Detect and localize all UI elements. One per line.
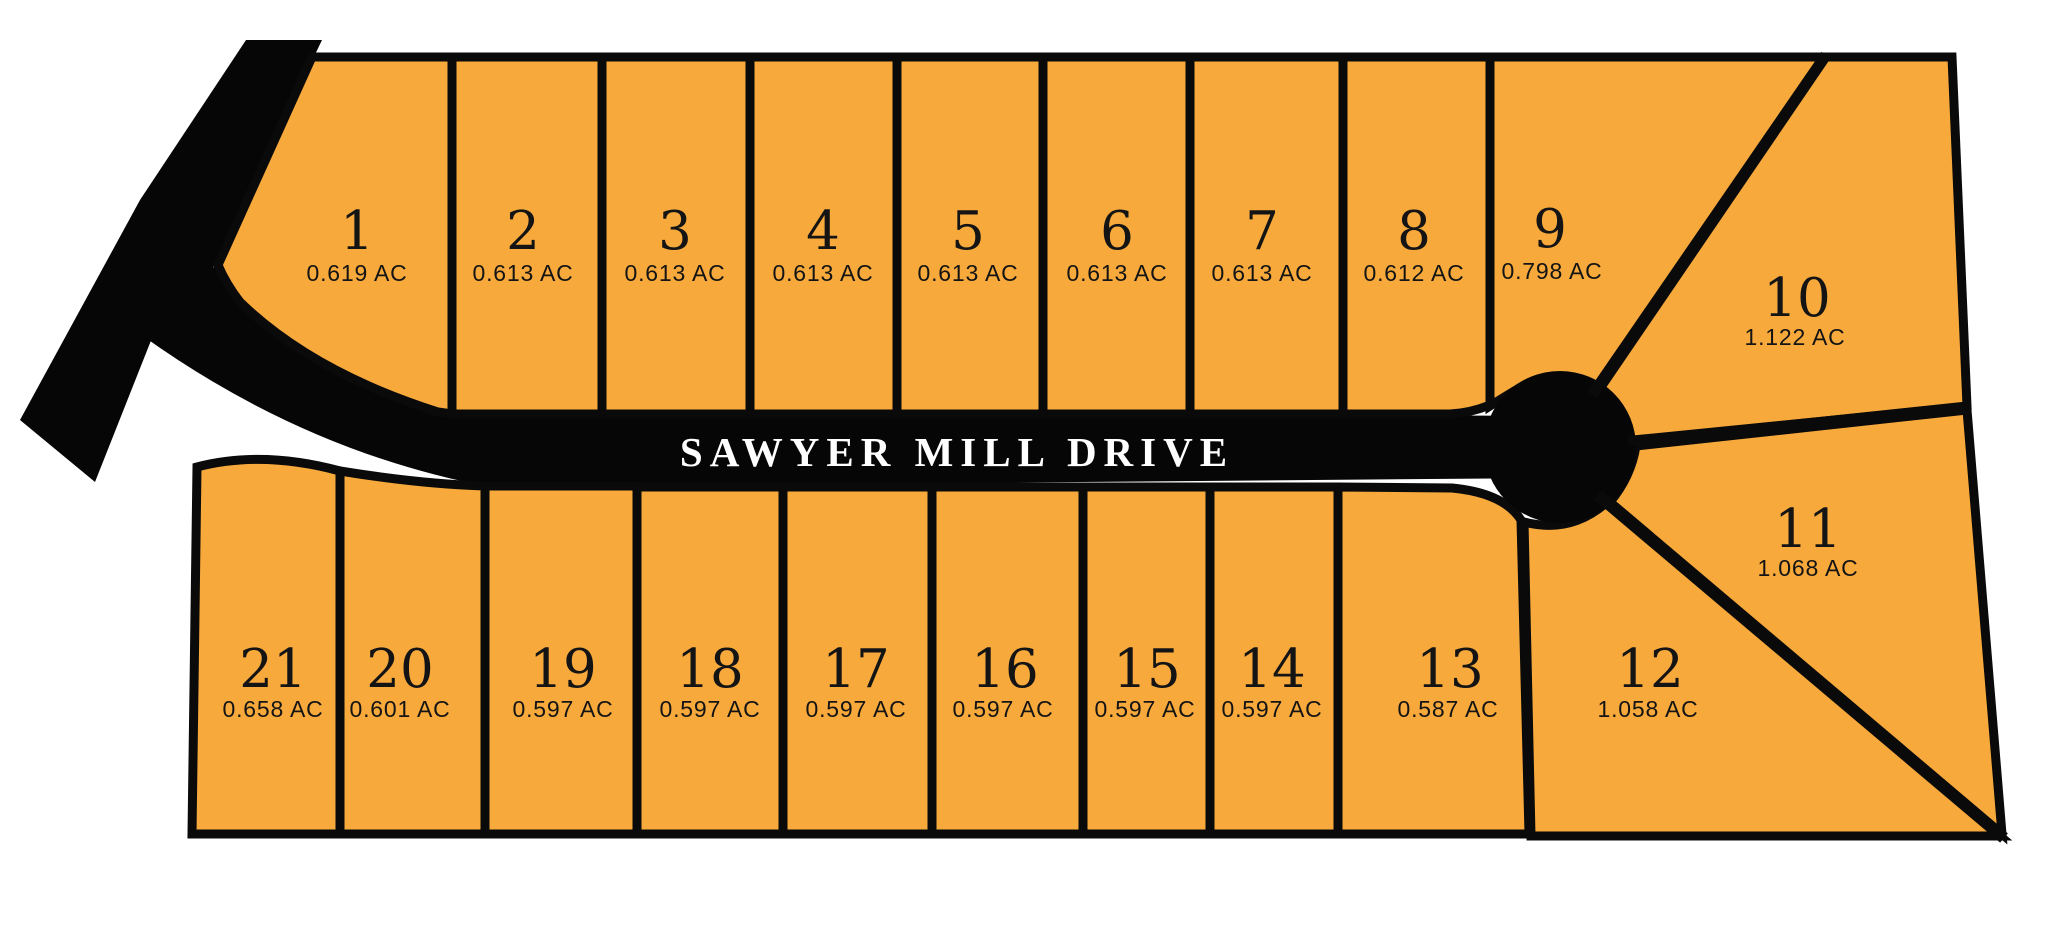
lot-17-area: 0.597 AC (805, 696, 906, 722)
lot-6-area: 0.613 AC (1066, 260, 1167, 286)
lot-2-area: 0.613 AC (472, 260, 573, 286)
lot-15-area: 0.597 AC (1094, 696, 1195, 722)
lot-14-area: 0.597 AC (1221, 696, 1322, 722)
lot-7-number: 7 (1245, 201, 1279, 262)
lot-9-number: 9 (1533, 199, 1567, 260)
lot-8-area: 0.612 AC (1363, 260, 1464, 286)
lot-15-number: 15 (1113, 639, 1180, 700)
lot-3-area: 0.613 AC (624, 260, 725, 286)
lot-5-number: 5 (951, 201, 985, 262)
lot-4-number: 4 (806, 201, 840, 262)
plat-map: SAWYER MILL DRIVE 1 0.619 AC 2 0.613 AC … (0, 0, 2048, 928)
lot-20-area: 0.601 AC (349, 696, 450, 722)
lot-17-number: 17 (822, 639, 889, 700)
lot-19-number: 19 (529, 639, 596, 700)
lot-18-number: 18 (676, 639, 743, 700)
lot-21-number: 21 (239, 639, 306, 700)
lot-9-area: 0.798 AC (1501, 258, 1602, 284)
lot-4-area: 0.613 AC (772, 260, 873, 286)
lot-13-area: 0.587 AC (1397, 696, 1498, 722)
lot-10-number: 10 (1763, 268, 1830, 329)
lot-12-number: 12 (1616, 639, 1683, 700)
lot-21-area: 0.658 AC (222, 696, 323, 722)
lot-11-number: 11 (1774, 499, 1841, 560)
lot-18-area: 0.597 AC (659, 696, 760, 722)
lot-5-area: 0.613 AC (917, 260, 1018, 286)
lot-16-area: 0.597 AC (952, 696, 1053, 722)
lot-7-area: 0.613 AC (1211, 260, 1312, 286)
lot-12-area: 1.058 AC (1597, 696, 1698, 722)
lot-6-number: 6 (1100, 201, 1134, 262)
lot-11-area: 1.068 AC (1757, 555, 1858, 581)
lot-1-number: 1 (340, 201, 374, 262)
lot-10-area: 1.122 AC (1744, 324, 1845, 350)
lot-19-area: 0.597 AC (512, 696, 613, 722)
lot-20-number: 20 (366, 639, 433, 700)
lot-13-number: 13 (1416, 639, 1483, 700)
lot-2-number: 2 (506, 201, 540, 262)
lot-14-number: 14 (1238, 639, 1305, 700)
lot-3-number: 3 (658, 201, 692, 262)
lot-1-area: 0.619 AC (306, 260, 407, 286)
lot-8-number: 8 (1397, 201, 1431, 262)
lot-16-number: 16 (971, 639, 1038, 700)
road-name-label: SAWYER MILL DRIVE (680, 429, 1234, 475)
